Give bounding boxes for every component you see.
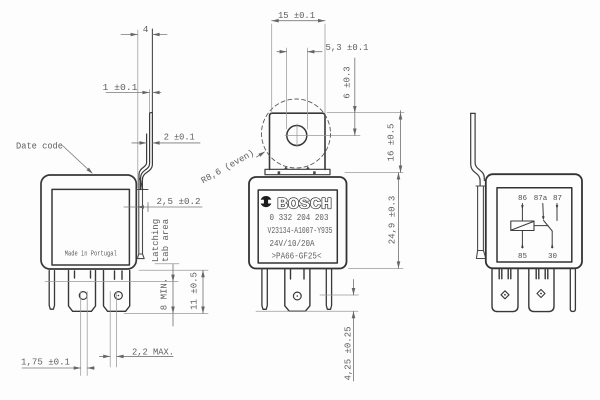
svg-text:15 ±0.1: 15 ±0.1 [278,10,315,21]
svg-text:16 ±0.5: 16 ±0.5 [387,124,397,162]
svg-text:0 332 204 203: 0 332 204 203 [270,213,329,223]
svg-text:BOSCH: BOSCH [277,195,332,213]
svg-text:2,2 MAX.: 2,2 MAX. [132,347,174,358]
svg-text:24V/10/20A: 24V/10/20A [270,239,315,249]
svg-text:1 ±0.1: 1 ±0.1 [103,82,138,93]
svg-text:87a: 87a [534,195,548,203]
svg-text:Date code: Date code [16,142,63,152]
svg-text:30: 30 [548,253,558,261]
svg-text:24,9 ±0.3: 24,9 ±0.3 [388,196,398,245]
svg-text:87: 87 [553,195,562,203]
svg-text:6 ±0.3: 6 ±0.3 [343,66,353,98]
svg-text:V23134-A1007-Y935: V23134-A1007-Y935 [268,226,333,236]
svg-text:>PA66-GF25<: >PA66-GF25< [272,251,322,261]
svg-text:85: 85 [518,253,528,261]
svg-text:11 ±0.5: 11 ±0.5 [190,272,200,310]
svg-text:86: 86 [518,195,528,203]
svg-text:2,5 ±0.2: 2,5 ±0.2 [157,196,201,207]
svg-text:tab area: tab area [161,218,171,262]
svg-text:Latching: Latching [151,219,161,262]
svg-text:4,25 ±0.25: 4,25 ±0.25 [344,326,354,380]
svg-text:1,75 ±0.1: 1,75 ±0.1 [21,357,70,368]
svg-text:5,3 ±0.1: 5,3 ±0.1 [326,42,369,53]
svg-text:Made in Portugal: Made in Portugal [65,251,117,259]
svg-text:2 ±0.1: 2 ±0.1 [164,132,195,143]
svg-text:8 MIN.: 8 MIN. [160,278,170,310]
svg-text:4: 4 [143,24,149,35]
